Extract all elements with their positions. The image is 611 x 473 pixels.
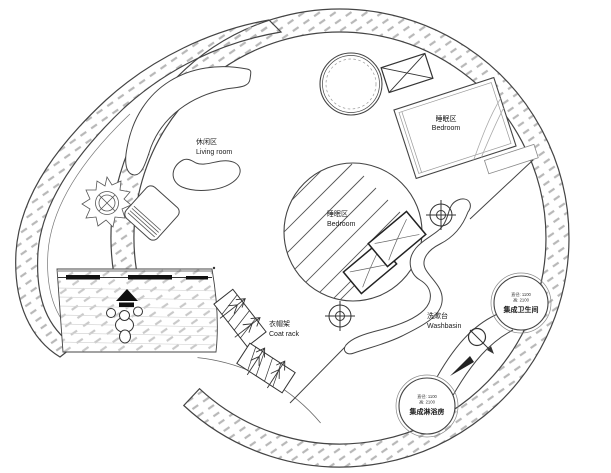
floor-plan-canvas: 睡眠区 Bedroom 睡眠 bbox=[0, 0, 611, 473]
shower-pod-dim-diameter: 直径: 1100 bbox=[417, 393, 437, 399]
washbasin-label-zh: 洗漱台 bbox=[427, 311, 448, 320]
round-table bbox=[320, 53, 382, 115]
toilet-pod-dim-height: 高: 2100 bbox=[513, 297, 530, 304]
partition-line-lower bbox=[290, 347, 345, 403]
washbasin-label: 洗漱台 Washbasin bbox=[427, 311, 461, 330]
washbasin-label-en: Washbasin bbox=[427, 323, 461, 330]
bedroom-upper-label-zh: 睡眠区 bbox=[436, 115, 457, 123]
bedroom-upper-label-en: Bedroom bbox=[432, 125, 461, 132]
coat-rack-label-zh: 衣帽架 bbox=[269, 319, 290, 328]
bedroom-core-circle bbox=[222, 140, 426, 332]
shower-pod: 直径: 1100 高: 2100 集成淋浴房 bbox=[396, 375, 458, 437]
coat-rack-label: 衣帽架 Coat rack bbox=[269, 319, 299, 338]
toilet-pod-name: 集成卫生间 bbox=[503, 305, 539, 314]
coat-rack bbox=[211, 287, 269, 349]
bedroom-center-label-en: Bedroom bbox=[327, 221, 356, 228]
double-bed bbox=[394, 72, 538, 195]
toilet-pod-dim-diameter: 直径: 1100 bbox=[511, 291, 531, 297]
living-room-label-en: Living room bbox=[196, 149, 232, 156]
crosshair-marker-icon bbox=[325, 301, 355, 331]
living-room-label-zh: 休闲区 bbox=[196, 137, 217, 146]
faucet-icon bbox=[469, 329, 495, 355]
living-room-label: 休闲区 Living room bbox=[196, 137, 232, 156]
reference-dot bbox=[213, 267, 215, 269]
side-table bbox=[173, 159, 240, 190]
toilet-pod: 直径: 1100 高: 2100 集成卫生间 bbox=[491, 273, 551, 333]
shower-pod-dim-height: 高: 2100 bbox=[419, 399, 436, 406]
coat-rack bbox=[235, 340, 298, 396]
shower-pod-name: 集成淋浴房 bbox=[409, 407, 445, 416]
coat-rack-label-en: Coat rack bbox=[269, 331, 299, 338]
floor-plan-drawing: 睡眠区 Bedroom 睡眠 bbox=[0, 0, 611, 473]
bedroom-center-label-zh: 睡眠区 bbox=[327, 210, 348, 218]
flow-arrow-icon bbox=[450, 356, 474, 376]
ac-unit-icon bbox=[381, 54, 433, 93]
